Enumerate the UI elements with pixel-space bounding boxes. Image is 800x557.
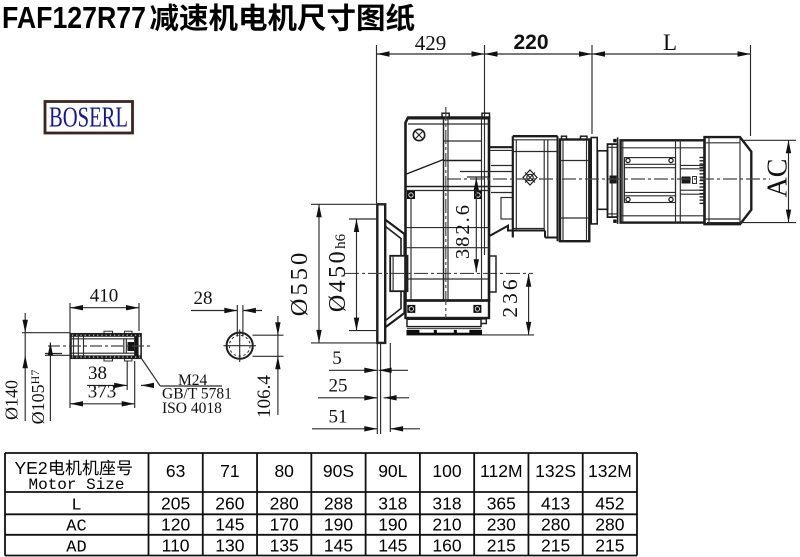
svg-text:318: 318 bbox=[432, 494, 461, 514]
svg-text:L: L bbox=[663, 30, 677, 55]
svg-text:160: 160 bbox=[432, 536, 461, 556]
svg-text:413: 413 bbox=[541, 494, 570, 514]
svg-text:AD: AD bbox=[66, 539, 86, 557]
svg-text:373: 373 bbox=[88, 382, 117, 403]
svg-text:280: 280 bbox=[541, 515, 570, 535]
svg-text:80: 80 bbox=[274, 461, 294, 481]
svg-text:230: 230 bbox=[487, 515, 516, 535]
svg-text:Ø550: Ø550 bbox=[286, 250, 313, 316]
svg-text:215: 215 bbox=[487, 536, 516, 556]
svg-text:120: 120 bbox=[161, 515, 190, 535]
svg-text:AC: AC bbox=[763, 159, 794, 198]
svg-text:YE2: YE2 bbox=[15, 458, 48, 478]
svg-text:AC: AC bbox=[66, 518, 86, 537]
svg-text:280: 280 bbox=[270, 494, 299, 514]
svg-text:429: 429 bbox=[415, 31, 447, 55]
svg-text:90S: 90S bbox=[323, 461, 354, 481]
svg-text:452: 452 bbox=[595, 494, 624, 514]
svg-text:365: 365 bbox=[487, 494, 516, 514]
svg-text:410: 410 bbox=[90, 286, 119, 307]
svg-text:210: 210 bbox=[432, 515, 461, 535]
svg-text:220: 220 bbox=[513, 31, 548, 54]
svg-text:132M: 132M bbox=[588, 461, 632, 481]
svg-text:170: 170 bbox=[270, 515, 299, 535]
svg-text:112M: 112M bbox=[480, 461, 522, 481]
svg-text:ISO 4018: ISO 4018 bbox=[162, 400, 222, 417]
svg-text:318: 318 bbox=[378, 494, 407, 514]
svg-text:Motor Size: Motor Size bbox=[28, 476, 124, 494]
svg-text:25: 25 bbox=[329, 376, 348, 397]
svg-text:132S: 132S bbox=[535, 461, 576, 481]
svg-text:205: 205 bbox=[161, 494, 190, 514]
svg-text:236: 236 bbox=[498, 276, 522, 317]
svg-text:63: 63 bbox=[166, 461, 185, 481]
svg-text:90L: 90L bbox=[378, 461, 407, 481]
svg-text:28: 28 bbox=[194, 288, 213, 309]
svg-text:130: 130 bbox=[215, 536, 244, 556]
svg-text:FAF127R77: FAF127R77 bbox=[2, 0, 146, 35]
svg-text:145: 145 bbox=[215, 515, 244, 535]
svg-text:106.4: 106.4 bbox=[254, 375, 275, 418]
svg-text:215: 215 bbox=[541, 536, 570, 556]
svg-text:382.6: 382.6 bbox=[452, 203, 474, 259]
svg-text:215: 215 bbox=[595, 536, 624, 556]
svg-text:L: L bbox=[71, 497, 81, 516]
svg-text:100: 100 bbox=[432, 461, 461, 481]
svg-text:51: 51 bbox=[329, 407, 348, 428]
svg-text:260: 260 bbox=[215, 494, 244, 514]
svg-text:135: 135 bbox=[270, 536, 299, 556]
svg-text:71: 71 bbox=[220, 461, 239, 481]
svg-text:Ø140: Ø140 bbox=[2, 380, 22, 420]
svg-text:145: 145 bbox=[324, 536, 353, 556]
svg-text:190: 190 bbox=[324, 515, 353, 535]
svg-text:5: 5 bbox=[332, 348, 342, 369]
svg-text:145: 145 bbox=[378, 536, 407, 556]
svg-text:BOSERL: BOSERL bbox=[49, 103, 128, 134]
svg-text:280: 280 bbox=[595, 515, 624, 535]
svg-text:110: 110 bbox=[162, 536, 190, 556]
svg-text:190: 190 bbox=[378, 515, 407, 535]
svg-text:288: 288 bbox=[324, 494, 353, 514]
